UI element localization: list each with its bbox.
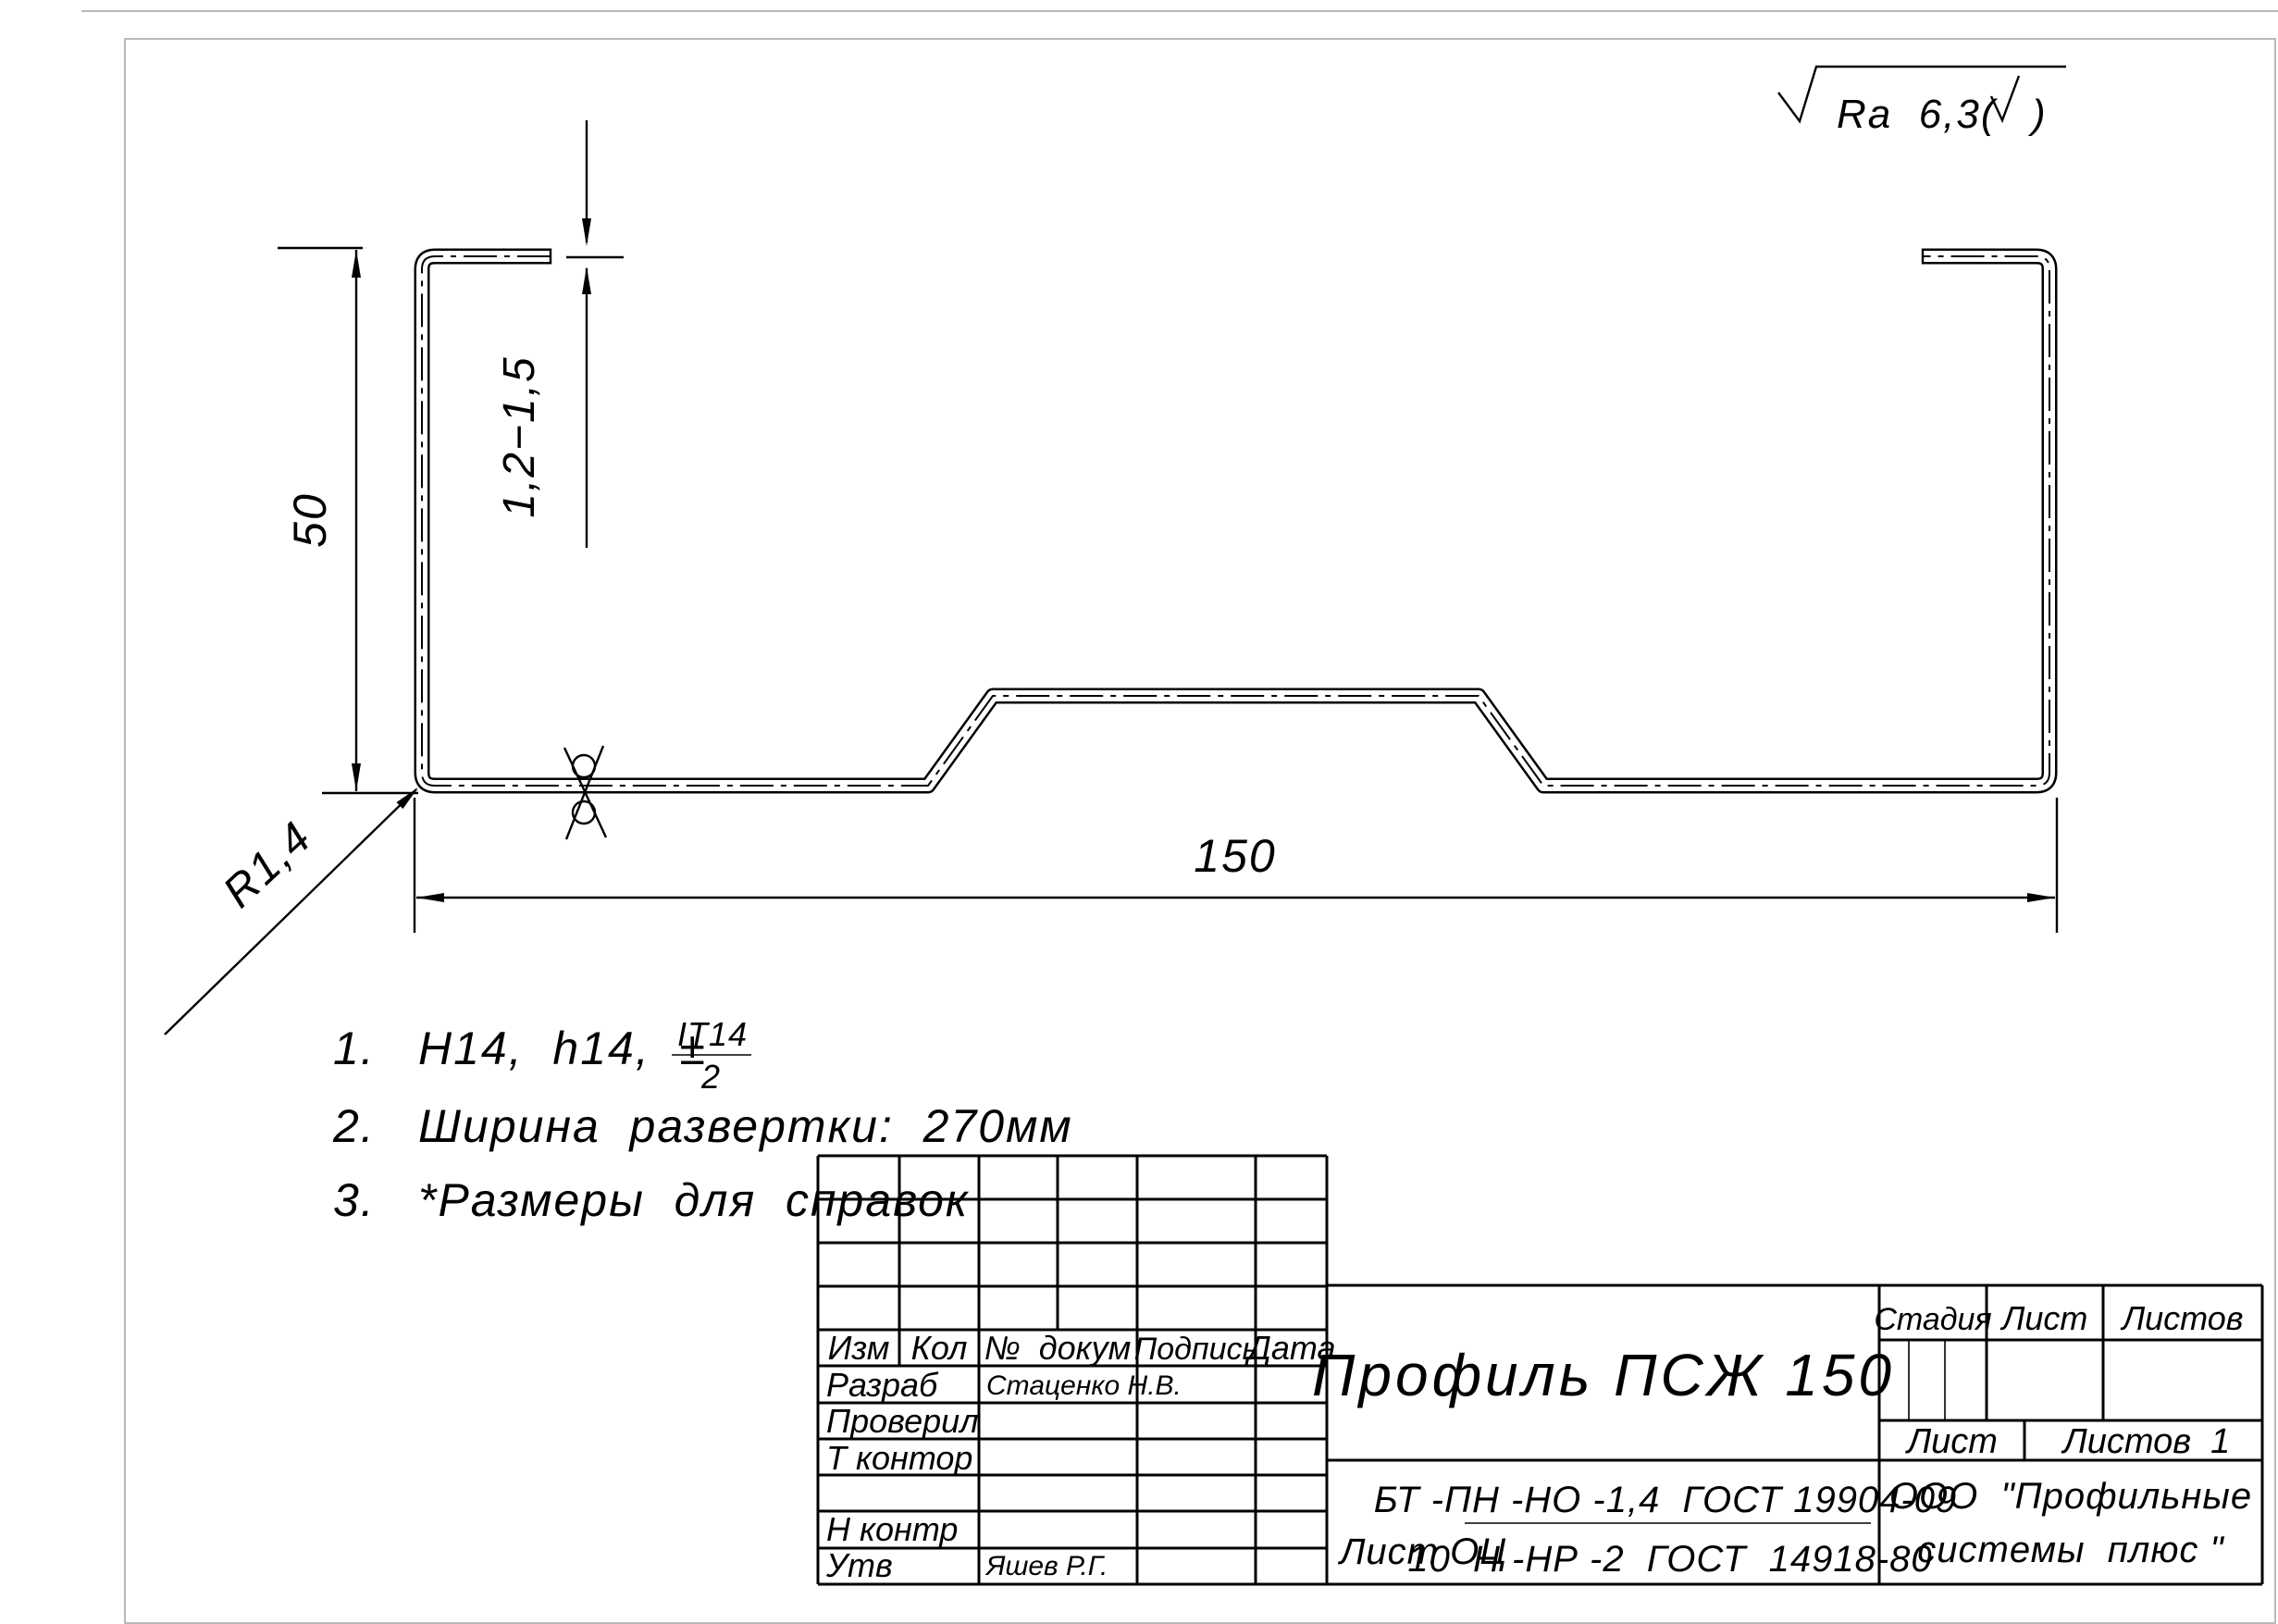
sheet-label: Лист bbox=[2000, 1299, 2088, 1337]
dimension-width-150: 150 bbox=[415, 798, 2057, 933]
row-approved-label: Утв bbox=[825, 1546, 893, 1584]
engineering-drawing-page: 50 1,2−1,5 150 R1,4 Ra 6,3( ) bbox=[0, 0, 2278, 1624]
col-docnum: № докум bbox=[984, 1329, 1132, 1367]
profile-cross-section bbox=[422, 249, 2049, 787]
row-ncontrol-label: Н контр bbox=[826, 1510, 958, 1548]
sheet-count-strip: Лист Листов 1 bbox=[1904, 1422, 2230, 1461]
notes: 1. H14, h14, ± IT14 2 2. Ширина развертк… bbox=[332, 1015, 1073, 1226]
note-2-text: Ширина развертки: 270мм bbox=[418, 1100, 1073, 1152]
row-tcontrol-label: Т контор bbox=[826, 1439, 972, 1477]
note-2-number: 2. bbox=[332, 1100, 376, 1152]
note-1-fraction-denominator: 2 bbox=[700, 1058, 721, 1096]
row-checked-label: Проверил bbox=[826, 1402, 979, 1440]
note-1-fraction-numerator: IT14 bbox=[677, 1015, 748, 1053]
note-3-number: 3. bbox=[333, 1174, 376, 1226]
stage-sheet-header: Стадия Лист Листов bbox=[1874, 1299, 2243, 1337]
col-kol: Кол bbox=[911, 1329, 968, 1367]
dimension-thickness: 1,2−1,5 bbox=[495, 120, 624, 548]
roughness-close-paren: ) bbox=[2027, 92, 2048, 137]
profile-centerline bbox=[422, 256, 2049, 786]
note-1-number: 1. bbox=[333, 1023, 376, 1074]
col-signature: Подпись bbox=[1134, 1332, 1259, 1367]
material-numerator: БТ -ПН -НО -1,4 ГОСТ 19904-09 bbox=[1374, 1480, 1958, 1520]
company-line-1: ООО "Профильные bbox=[1889, 1476, 2252, 1517]
upper-circle bbox=[573, 755, 595, 777]
revision-table-header: Изм Кол № докум Подпись Дата bbox=[828, 1329, 1336, 1367]
arrowhead-up bbox=[352, 250, 361, 278]
row-approved-name: Яшев Р.Г. bbox=[984, 1551, 1108, 1581]
radius-leader: R1,4 bbox=[165, 787, 418, 1035]
surface-roughness-mark: Ra 6,3( ) bbox=[1778, 67, 2066, 137]
material-designation: Лист ОЦ БТ -ПН -НО -1,4 ГОСТ 19904-09 10… bbox=[1337, 1480, 1957, 1580]
note-1-text: H14, h14, ± bbox=[418, 1023, 707, 1074]
dimension-height-50: 50 bbox=[278, 248, 418, 793]
row-developed-name: Стаценко Н.В. bbox=[986, 1370, 1182, 1401]
profile-sheet-fill bbox=[422, 256, 2049, 786]
material-denominator: 10 Н -НР -2 ГОСТ 14918-80 bbox=[1407, 1539, 1932, 1580]
strip-sheet-label: Лист bbox=[1904, 1422, 1998, 1461]
dim-width-text: 150 bbox=[1194, 830, 1276, 882]
sheets-label: Листов bbox=[2120, 1299, 2243, 1337]
stage-label: Стадия bbox=[1874, 1302, 1991, 1337]
drawing-sheet: 50 1,2−1,5 150 R1,4 Ra 6,3( ) bbox=[0, 0, 2278, 1624]
strip-sheets-count: Листов 1 bbox=[2061, 1422, 2231, 1461]
company-name: ООО "Профильные системы плюс " bbox=[1889, 1476, 2252, 1570]
arrowhead-right bbox=[2027, 893, 2055, 902]
arrowhead-down bbox=[582, 218, 591, 246]
company-line-2: системы плюс " bbox=[1917, 1530, 2224, 1570]
dim-radius-text: R1,4 bbox=[214, 812, 321, 917]
document-title: Профиль ПСЖ 150 bbox=[1312, 1342, 1895, 1408]
row-developed-label: Разраб bbox=[826, 1366, 939, 1404]
arrowhead-left bbox=[416, 893, 444, 902]
profile-sheet-outline bbox=[422, 256, 2049, 786]
title-block: Изм Кол № докум Подпись Дата Разраб Стац… bbox=[818, 1156, 2262, 1584]
dim-thickness-text: 1,2−1,5 bbox=[495, 355, 544, 517]
arrowhead-down bbox=[352, 763, 361, 791]
col-izm: Изм bbox=[828, 1329, 890, 1367]
dim-height-text: 50 bbox=[284, 492, 336, 548]
roughness-value: Ra 6,3( bbox=[1837, 92, 1999, 137]
